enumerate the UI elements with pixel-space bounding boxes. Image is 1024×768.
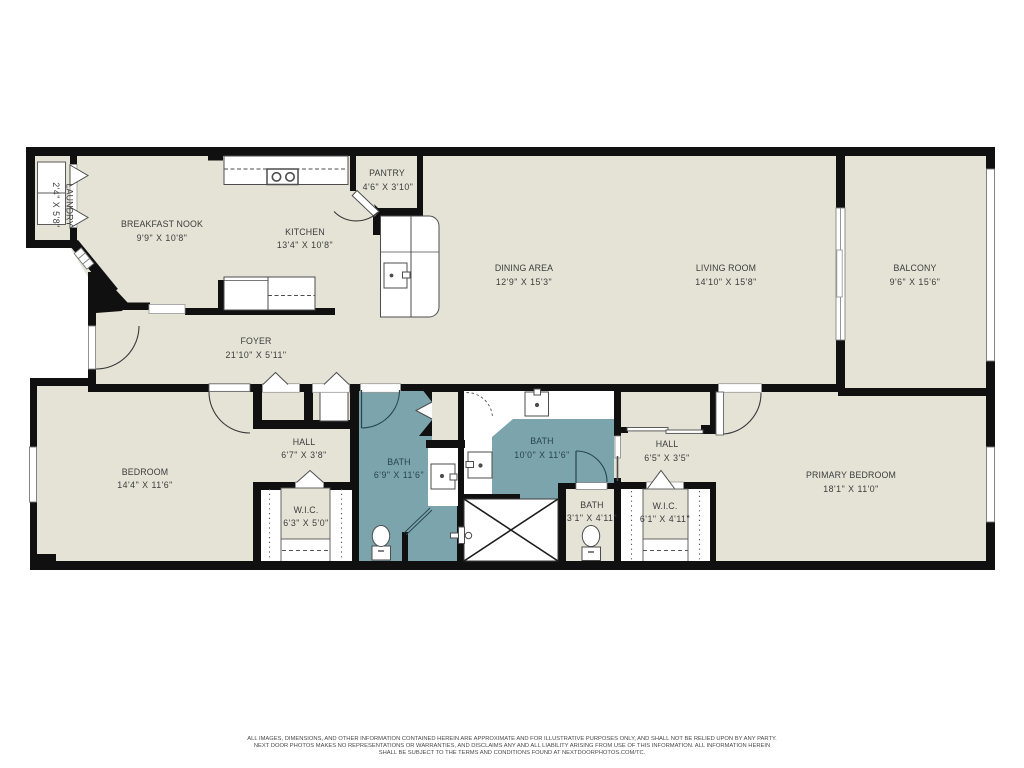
svg-text:21'10" X 5'11": 21'10" X 5'11" [226,350,287,360]
svg-text:10'0" X 11'6": 10'0" X 11'6" [514,450,570,460]
svg-text:6'9" X 11'6": 6'9" X 11'6" [374,470,424,480]
svg-text:LIVING ROOM: LIVING ROOM [696,263,756,273]
svg-text:HALL: HALL [293,437,316,447]
svg-text:HALL: HALL [656,439,679,449]
svg-text:BALCONY: BALCONY [893,263,936,273]
svg-text:6'7" X 3'8": 6'7" X 3'8" [281,450,326,460]
svg-text:ALL IMAGES, DIMENSIONS, AND OT: ALL IMAGES, DIMENSIONS, AND OTHER INFORM… [247,736,777,742]
svg-text:BATH: BATH [580,500,603,510]
svg-text:13'4" X 10'8": 13'4" X 10'8" [277,240,333,250]
svg-text:DINING AREA: DINING AREA [495,263,553,273]
svg-text:KITCHEN: KITCHEN [285,227,325,237]
svg-text:6'1" X 4'11": 6'1" X 4'11" [640,514,690,524]
svg-text:W.I.C.: W.I.C. [294,505,319,515]
svg-text:NEXT DOOR PHOTOS MAKES NO REPR: NEXT DOOR PHOTOS MAKES NO REPRESENTATION… [254,743,770,749]
svg-text:W.I.C.: W.I.C. [653,501,678,511]
svg-text:14'4" X 11'6": 14'4" X 11'6" [117,480,173,490]
svg-text:9'6" X 15'6": 9'6" X 15'6" [890,277,941,287]
svg-text:BEDROOM: BEDROOM [122,467,169,477]
svg-text:SHALL BE SUBJECT TO THE TERMS: SHALL BE SUBJECT TO THE TERMS AND CONDIT… [379,750,646,756]
svg-text:2'4" X 5'8": 2'4" X 5'8" [51,182,61,227]
svg-text:6'3" X 5'0": 6'3" X 5'0" [283,518,328,528]
svg-text:BATH: BATH [530,436,553,446]
svg-text:9'9" X 10'8": 9'9" X 10'8" [137,233,188,243]
svg-text:4'6" X 3'10": 4'6" X 3'10" [363,182,414,192]
svg-text:12'9" X 15'3": 12'9" X 15'3" [496,277,552,287]
svg-text:18'1" X 11'0": 18'1" X 11'0" [823,484,879,494]
svg-text:14'10" X 15'8": 14'10" X 15'8" [695,277,757,287]
svg-text:FOYER: FOYER [240,336,271,346]
svg-text:LAUNDRY: LAUNDRY [65,184,75,227]
svg-text:BATH: BATH [387,457,410,467]
svg-text:BREAKFAST NOOK: BREAKFAST NOOK [121,219,203,229]
svg-text:6'5" X 3'5": 6'5" X 3'5" [644,453,689,463]
svg-text:3'1" X 4'11": 3'1" X 4'11" [567,513,617,523]
svg-text:PANTRY: PANTRY [369,168,405,178]
svg-text:PRIMARY BEDROOM: PRIMARY BEDROOM [806,470,896,480]
